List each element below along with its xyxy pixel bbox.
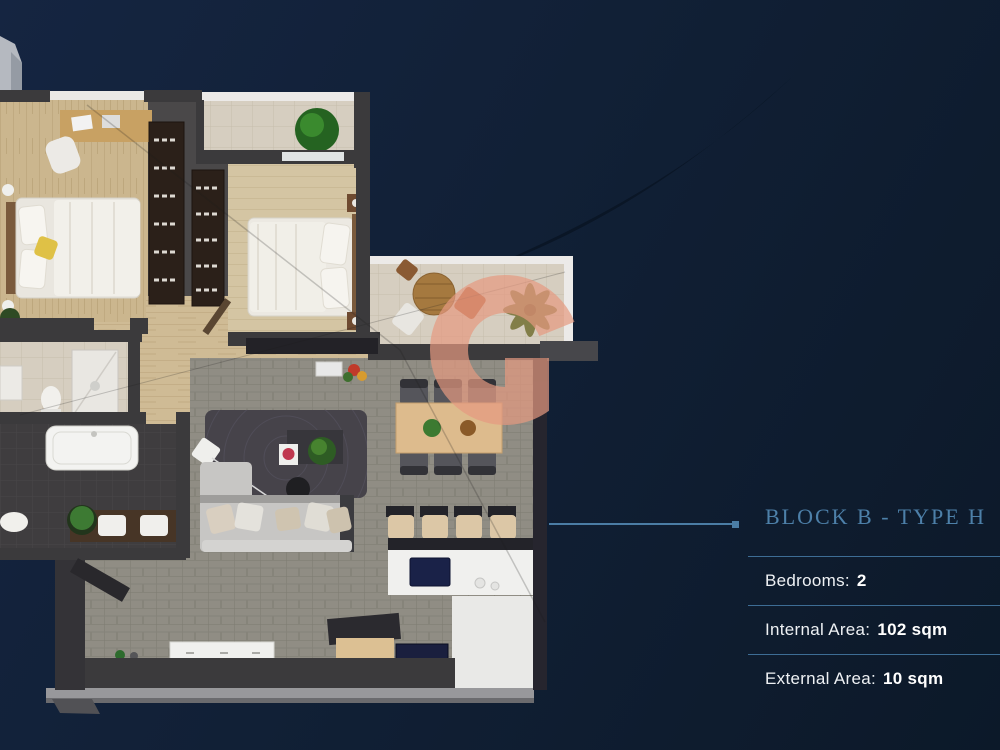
toilet: [41, 386, 61, 412]
info-panel: BLOCK B - TYPE H Bedrooms: 2 Internal Ar…: [748, 504, 1000, 703]
bottom-ledge: [46, 688, 534, 699]
pointer-line-rule: [549, 523, 733, 525]
spec-row-bedrooms: Bedrooms: 2: [748, 556, 1000, 605]
spec-label: External Area:: [765, 669, 876, 689]
slide: BLOCK B - TYPE H Bedrooms: 2 Internal Ar…: [0, 0, 1000, 750]
pointer-line: [549, 521, 739, 529]
spec-value: 10 sqm: [883, 669, 943, 689]
sink: [140, 515, 168, 536]
unit-title: BLOCK B - TYPE H: [748, 504, 1000, 530]
spec-row-internal-area: Internal Area: 102 sqm: [748, 605, 1000, 654]
kitchen-floor: [452, 596, 533, 688]
spec-rows: Bedrooms: 2 Internal Area: 102 sqm Exter…: [748, 556, 1000, 703]
hob: [410, 558, 450, 586]
apartment-plan: [0, 90, 598, 714]
spec-label: Internal Area:: [765, 620, 870, 640]
toilet: [0, 512, 28, 532]
bedroom-2-furniture: [240, 190, 365, 330]
wc-sink: [0, 366, 22, 400]
spec-value: 102 sqm: [877, 620, 947, 640]
spec-row-external-area: External Area: 10 sqm: [748, 654, 1000, 703]
credenza: [246, 338, 378, 354]
building-fragment: [0, 36, 22, 97]
background-swoosh-shape: [478, 78, 791, 272]
radiator: [316, 362, 342, 376]
spec-label: Bedrooms:: [765, 571, 850, 591]
spec-value: 2: [857, 571, 867, 591]
sink: [98, 515, 126, 536]
bed-1: [6, 198, 140, 298]
bathroom-plant: [70, 506, 94, 530]
pointer-line-dot: [732, 521, 739, 528]
kitchen-island: [386, 506, 533, 595]
bed-2: [248, 214, 360, 318]
